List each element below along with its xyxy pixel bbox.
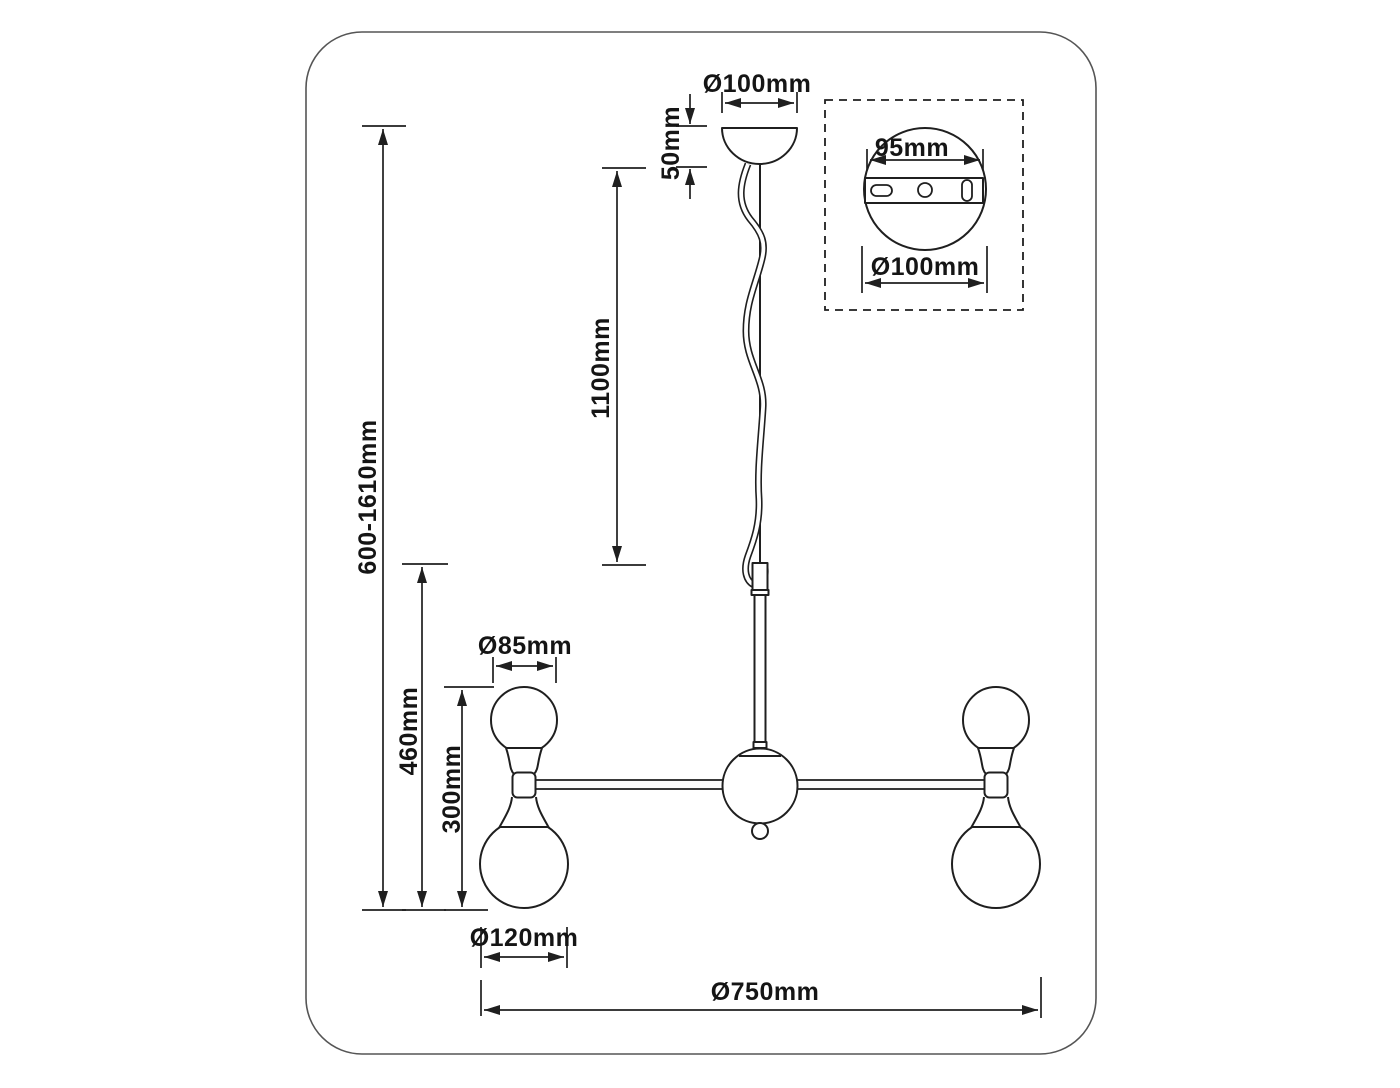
mounting-plate-inset: 95mm Ø100mm [825,100,1023,310]
dimension-overall-diameter: Ø750mm [481,977,1041,1018]
right-socket-hub [985,773,1008,798]
rod-top-collar [753,563,768,590]
dim-label-overall-diameter: Ø750mm [711,978,820,1006]
mounting-bracket-bar [865,178,983,203]
dim-label-cord-length: 1100mm [587,317,615,419]
dimension-body-height: 460mm [395,564,448,910]
center-hub [723,749,798,840]
dim-label-body-height: 460mm [395,687,423,776]
dimension-canopy-diameter: Ø100mm [703,70,812,113]
dim-label-small-globe: Ø85mm [478,632,572,660]
suspension-assembly [722,128,797,586]
pendant-light-dimension-diagram: 95mm Ø100mm Ø100mm 50mm 1100mm 600-1610m… [0,0,1400,1088]
dim-label-large-globe: Ø120mm [470,924,579,952]
left-socket-hub [513,773,536,798]
hub-bottom-knob [752,823,768,839]
dimension-canopy-height: 50mm [657,94,707,199]
center-stem [752,563,769,748]
left-small-globe [491,687,557,753]
dim-label-canopy-height: 50mm [657,106,685,180]
dimension-small-globe: Ø85mm [478,632,572,683]
dim-label-bracket-width: 95mm [875,134,949,162]
dim-label-plate-diameter: Ø100mm [871,253,980,281]
hub-sphere [723,749,798,824]
right-arm-tube [797,780,988,789]
right-small-globe [963,687,1029,753]
left-globe-pair [480,687,568,908]
technical-drawing-page: 95mm Ø100mm Ø100mm 50mm 1100mm 600-1610m… [0,0,1400,1088]
rod-body [755,595,766,745]
left-large-globe [480,820,568,908]
right-large-globe [952,820,1040,908]
dim-label-fixture-height: 300mm [438,745,466,834]
dim-label-canopy-diameter: Ø100mm [703,70,812,98]
left-arm-tube [535,780,725,789]
dim-label-overall-height: 600-1610mm [354,419,382,574]
right-globe-pair [952,687,1040,908]
rod-band-lower [754,742,767,748]
dimension-cord-length: 1100mm [587,168,646,565]
dimension-large-globe: Ø120mm [470,924,579,968]
dimension-overall-height: 600-1610mm [354,126,406,910]
ceiling-canopy-dome [722,128,797,164]
power-cord-outline [741,164,765,586]
